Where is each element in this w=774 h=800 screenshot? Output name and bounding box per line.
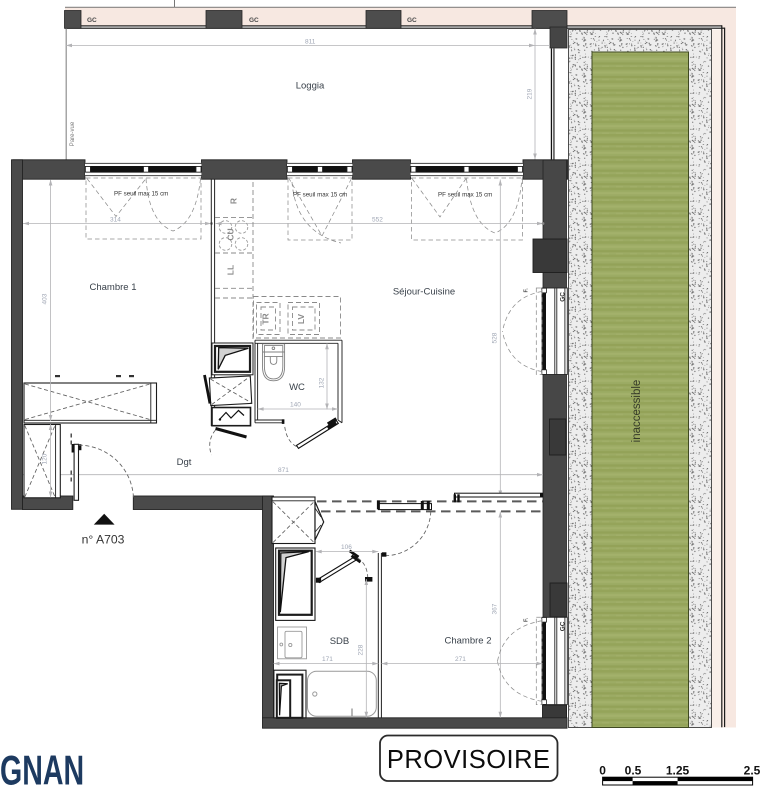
- svg-text:Séjour-Cuisine: Séjour-Cuisine: [393, 287, 455, 298]
- svg-text:PF seuil max 15 cm: PF seuil max 15 cm: [438, 192, 492, 199]
- svg-text:528: 528: [491, 332, 498, 343]
- svg-text:n° A703: n° A703: [82, 533, 125, 547]
- svg-text:0: 0: [599, 764, 606, 778]
- svg-text:Pare-vue: Pare-vue: [70, 121, 76, 146]
- svg-text:219: 219: [527, 88, 534, 99]
- svg-text:271: 271: [455, 656, 466, 663]
- svg-text:0.5: 0.5: [625, 764, 642, 778]
- svg-text:Dgt: Dgt: [177, 457, 192, 468]
- svg-text:LL: LL: [226, 265, 236, 275]
- svg-text:228: 228: [357, 644, 364, 655]
- svg-text:Chambre 1: Chambre 1: [90, 282, 137, 293]
- svg-text:PF seuil max 15 cm: PF seuil max 15 cm: [114, 191, 168, 198]
- svg-text:120: 120: [42, 453, 49, 464]
- svg-text:132: 132: [318, 377, 325, 388]
- svg-text:inaccessible: inaccessible: [631, 380, 643, 443]
- svg-text:TR: TR: [261, 313, 271, 324]
- svg-text:CU: CU: [226, 228, 236, 240]
- svg-text:GC: GC: [87, 17, 97, 24]
- svg-text:1.25: 1.25: [666, 764, 690, 778]
- svg-text:WC: WC: [289, 382, 305, 393]
- svg-text:LV: LV: [296, 314, 306, 325]
- svg-text:871: 871: [278, 467, 289, 474]
- svg-text:140: 140: [290, 402, 301, 409]
- svg-text:GC: GC: [407, 17, 417, 24]
- svg-text:R: R: [229, 198, 239, 204]
- svg-text:F.: F.: [524, 617, 530, 622]
- svg-text:GNAN: GNAN: [0, 746, 84, 794]
- svg-text:GC: GC: [560, 292, 567, 302]
- svg-text:811: 811: [305, 39, 316, 46]
- svg-text:106: 106: [341, 544, 352, 551]
- svg-text:2.5: 2.5: [744, 764, 761, 778]
- svg-text:Loggia: Loggia: [296, 81, 325, 92]
- svg-text:F.: F.: [524, 288, 530, 293]
- svg-text:367: 367: [491, 603, 498, 614]
- svg-text:403: 403: [42, 293, 49, 304]
- svg-text:PF seuil max 15 cm: PF seuil max 15 cm: [293, 192, 347, 199]
- svg-text:Chambre 2: Chambre 2: [445, 636, 492, 647]
- svg-text:171: 171: [322, 656, 333, 663]
- svg-text:SDB: SDB: [330, 636, 350, 647]
- svg-text:GC: GC: [249, 17, 259, 24]
- svg-text:GC: GC: [560, 621, 567, 631]
- svg-text:PROVISOIRE: PROVISOIRE: [387, 746, 551, 774]
- svg-text:314: 314: [110, 217, 121, 224]
- svg-text:552: 552: [372, 217, 383, 224]
